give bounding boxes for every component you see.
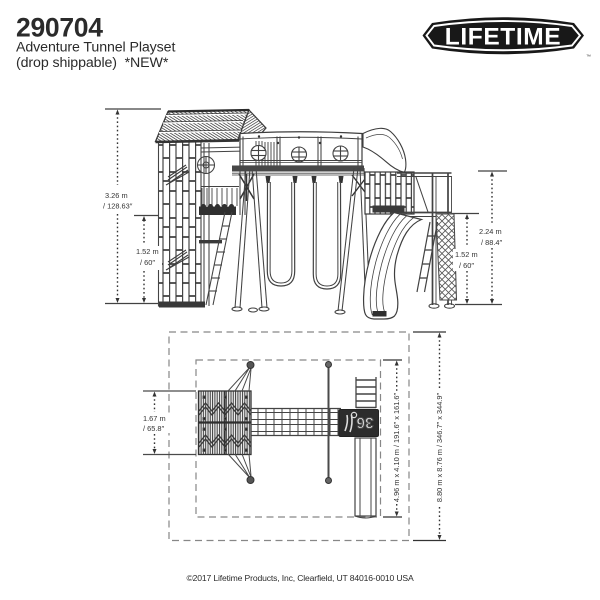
svg-text:4.96 m x 4.10 m / 191.6″ x 161: 4.96 m x 4.10 m / 191.6″ x 161.6″	[392, 393, 401, 503]
svg-text:/ 60″: / 60″	[459, 261, 474, 270]
svg-text:Adventure Tunnel Playset: Adventure Tunnel Playset	[16, 40, 175, 56]
svg-text:(drop shippable) *NEW*: (drop shippable) *NEW*	[16, 55, 169, 71]
svg-text:™: ™	[586, 54, 591, 60]
svg-text:©2017 Lifetime Products, Inc,: ©2017 Lifetime Products, Inc, Clearfield…	[186, 573, 414, 583]
svg-text:/ 88.4″: / 88.4″	[481, 238, 502, 247]
svg-text:36: 36	[356, 414, 374, 431]
svg-text:/ 60″: / 60″	[140, 258, 155, 267]
svg-text:290704: 290704	[16, 13, 103, 43]
svg-text:LIFETIME: LIFETIME	[445, 24, 561, 51]
svg-text:1.52 m: 1.52 m	[455, 250, 478, 259]
svg-text:3.26 m: 3.26 m	[105, 191, 128, 200]
svg-text:8.80 m x 8.76 m / 346.7″ x 344: 8.80 m x 8.76 m / 346.7″ x 344.9″	[435, 393, 444, 503]
svg-text:/ 128.63″: / 128.63″	[103, 202, 133, 211]
svg-text:/ 65.8″: / 65.8″	[143, 424, 164, 433]
svg-text:1.67 m: 1.67 m	[143, 414, 166, 423]
svg-text:1.52 m: 1.52 m	[136, 247, 159, 256]
svg-text:2.24 m: 2.24 m	[479, 227, 502, 236]
